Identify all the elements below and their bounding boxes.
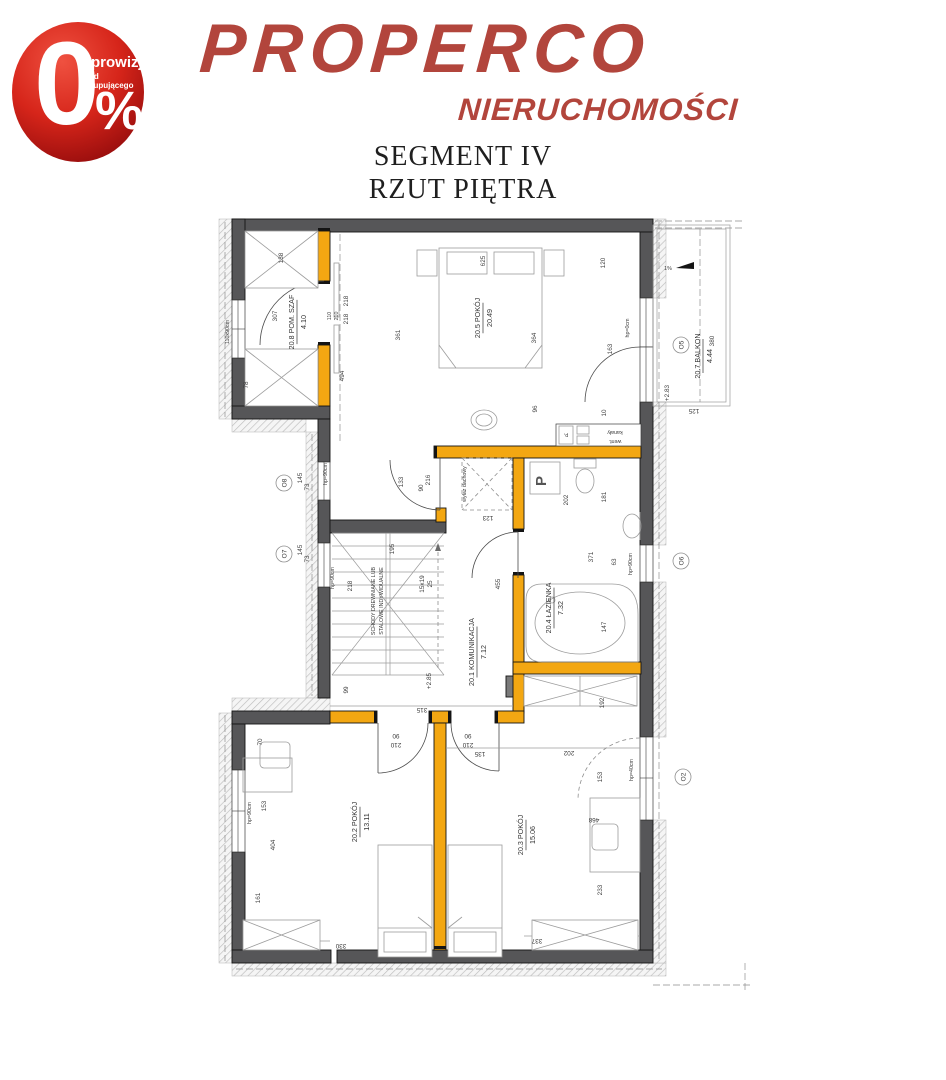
window-tag-text: O8 — [281, 478, 288, 487]
dimension-label: 404 — [270, 839, 277, 850]
dimension-label: P — [533, 476, 550, 486]
dimension-label: hp=90cm — [330, 566, 336, 589]
dimension-label: +2.83 — [664, 384, 671, 401]
window-O2 — [640, 737, 653, 820]
dimension-label: 163 — [607, 343, 614, 354]
room-label: 20.8 POM. SZAF4.10 — [287, 294, 308, 349]
dimension-label: SCHODY DREWNIANE LUB — [371, 566, 377, 635]
dimension-label: 90 — [392, 732, 400, 739]
window-O7 — [318, 543, 330, 587]
window-tag-text: O7 — [281, 549, 288, 558]
dimension-label: 337 — [531, 937, 542, 944]
radiator — [334, 263, 339, 317]
window-tag-O2: O2 — [675, 769, 691, 785]
window-tag-O6: O6 — [673, 553, 689, 569]
dimension-label: 90 — [464, 732, 472, 739]
room-label: 20.3 POKÓJ15.06 — [516, 814, 537, 855]
room-label: 20.1 KOMUNIKACJA7.12 — [467, 618, 488, 686]
dimension-label: 455 — [495, 578, 502, 589]
dimension-label: hp=90cm — [628, 552, 634, 575]
dimension-label: 315 — [416, 706, 427, 713]
room-name: 20.1 KOMUNIKACJA — [467, 618, 476, 686]
dimension-label: 25 — [427, 580, 434, 588]
slope-arrow — [676, 262, 694, 269]
dimension-label: 210 — [462, 741, 473, 748]
dimension-label: 70 — [257, 738, 264, 746]
balcony-window — [640, 298, 653, 347]
room-area: 13.11 — [362, 813, 371, 830]
dimension-label: 145 — [297, 544, 304, 555]
dimension-label: 73 — [304, 555, 311, 563]
dimension-label: 153 — [261, 800, 268, 811]
bathtub — [526, 584, 638, 662]
dimension-label: 120 — [600, 257, 607, 268]
room202-door-arc — [378, 723, 428, 773]
dimension-label: 192 — [599, 697, 606, 708]
dimension-label: 145 — [297, 472, 304, 483]
dimension-label: p, — [564, 432, 568, 438]
fixture — [471, 410, 497, 430]
dimension-label: 216 — [425, 474, 432, 485]
wardrobe — [245, 349, 318, 406]
desk — [243, 758, 292, 792]
dimension-label: hp=40cm — [629, 758, 635, 781]
dimension-label: 63 — [611, 558, 618, 566]
toilet — [574, 459, 596, 493]
room-name: 20.5 POKÓJ — [473, 297, 482, 338]
dimension-label: 361 — [395, 329, 402, 340]
dimension-label: 133 — [398, 476, 405, 487]
floor-plan: 20.5 POKÓJ20.4920.8 POM. SZAF4.1020.7 BA… — [0, 0, 946, 1080]
single-bed — [378, 845, 432, 957]
wardrobe — [524, 676, 637, 706]
closet-window — [232, 300, 245, 358]
roof-hatch — [462, 458, 512, 510]
dimension-label: 625 — [480, 255, 487, 266]
dimension-label: wyłaz dachowy — [462, 466, 468, 502]
dimension-label: 494 — [339, 370, 346, 381]
dimension-label: 181 — [601, 491, 608, 502]
dimension-label: hp=90cm — [247, 801, 253, 824]
dimension-label: 218 — [343, 295, 350, 306]
dimension-label: 210 — [390, 741, 401, 748]
dimension-label: 90 — [418, 484, 425, 492]
dimension-label: hp=90cm — [323, 462, 329, 485]
dimension-label: 10 — [601, 409, 608, 417]
double-bed — [417, 248, 564, 368]
dimension-label: 371 — [588, 551, 595, 562]
dimension-label: 202 — [563, 749, 574, 756]
dimension-label: 233 — [597, 884, 604, 895]
dimension-label: 73 — [304, 483, 311, 491]
single-bed — [448, 845, 502, 957]
window-tag-text: O6 — [678, 556, 685, 565]
bathroom-door-arc — [472, 532, 518, 578]
dimension-label: 210 — [334, 312, 340, 321]
dimension-label: kanały — [607, 429, 623, 435]
room-name: 20.3 POKÓJ — [516, 814, 525, 855]
dimension-label: 330 — [335, 942, 346, 949]
room-area: 7.32 — [556, 601, 565, 615]
wardrobe — [532, 920, 638, 950]
dimension-label: hp=0cm — [625, 318, 631, 338]
window-tag-O5: O5 — [673, 337, 689, 353]
wardrobe — [243, 920, 320, 950]
window-tag-O7: O7 — [276, 546, 292, 562]
desk — [590, 798, 640, 872]
room-name: 20.7 BALKON — [693, 333, 702, 378]
room-area: 20.49 — [485, 309, 494, 327]
dimension-label: 468 — [588, 816, 599, 823]
window-tag-text: O2 — [680, 772, 687, 781]
fixture-inner — [476, 414, 492, 426]
staircase — [332, 533, 444, 675]
sink — [623, 512, 641, 540]
dimension-label: 147 — [601, 621, 608, 632]
dimension-label: 218 — [347, 580, 354, 591]
dimension-label: 364 — [531, 332, 538, 343]
window-tag-O8: O8 — [276, 475, 292, 491]
dimension-label: 153 — [597, 771, 604, 782]
room-name: 20.2 POKÓJ — [350, 801, 359, 842]
dimension-label: 96 — [532, 405, 539, 413]
dimension-label: 78 — [243, 381, 250, 389]
room-area: 15.06 — [528, 826, 537, 844]
dimension-label: 380 — [709, 335, 716, 346]
dimension-label: 15x19 — [419, 575, 426, 593]
dimension-label: 218 — [343, 313, 350, 324]
room-name: 20.8 POM. SZAF — [287, 294, 296, 349]
balcony-door-opening — [640, 347, 653, 402]
room203-door-arc — [451, 723, 499, 771]
dimension-label: 110 — [327, 312, 333, 320]
dimension-label: 99 — [343, 686, 350, 694]
dimension-label: went. — [609, 438, 622, 444]
dimension-label: STALOWE INDYWIDUALNE — [379, 567, 385, 635]
dimension-label: +2.85 — [426, 672, 433, 689]
dimension-label: 307 — [272, 310, 279, 321]
room-name: 20.4 ŁAZIENKA — [544, 582, 553, 633]
room-label: 20.2 POKÓJ13.11 — [350, 801, 371, 842]
chair — [592, 824, 618, 850]
dimension-label: 125 — [688, 407, 699, 414]
dimension-label: 110x90cm — [225, 319, 231, 344]
room-label: 20.4 ŁAZIENKA7.32 — [544, 582, 565, 633]
room-area: 4.10 — [299, 315, 308, 329]
dimension-label: 138 — [278, 252, 285, 263]
chair — [260, 742, 290, 768]
window-tag-text: O5 — [678, 340, 685, 349]
room-area: 4.44 — [705, 349, 714, 363]
dimension-label: 123 — [482, 514, 493, 521]
dimension-label: 202 — [563, 494, 570, 505]
window-O6 — [640, 545, 653, 582]
dimension-label: 135 — [474, 750, 485, 757]
dimension-label: 1% — [664, 266, 672, 272]
dimension-label: 161 — [255, 892, 262, 903]
radiator — [334, 325, 339, 373]
dimension-label: 195 — [389, 543, 396, 554]
room-area: 7.12 — [479, 645, 488, 659]
